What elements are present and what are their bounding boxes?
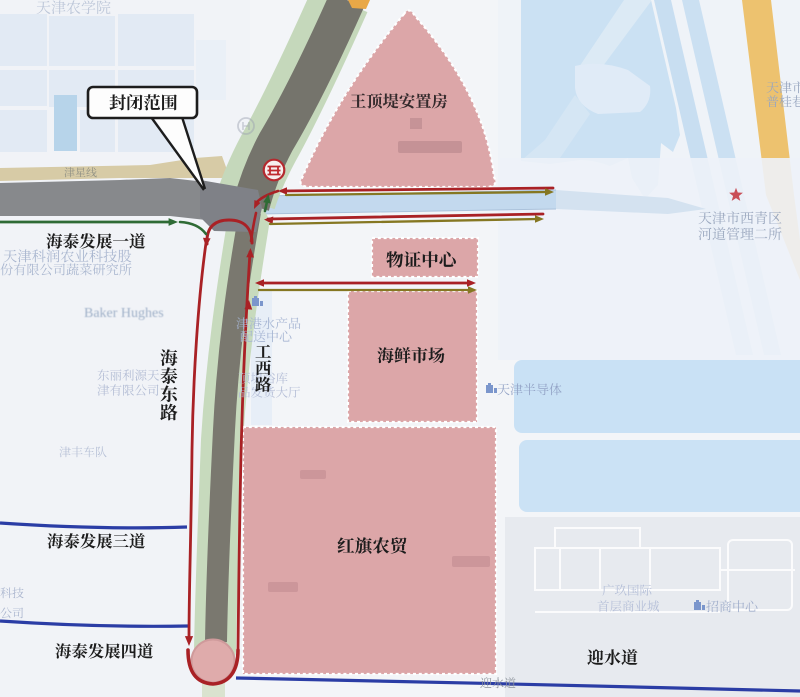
svg-text:Baker Hughes: Baker Hughes	[84, 306, 164, 321]
